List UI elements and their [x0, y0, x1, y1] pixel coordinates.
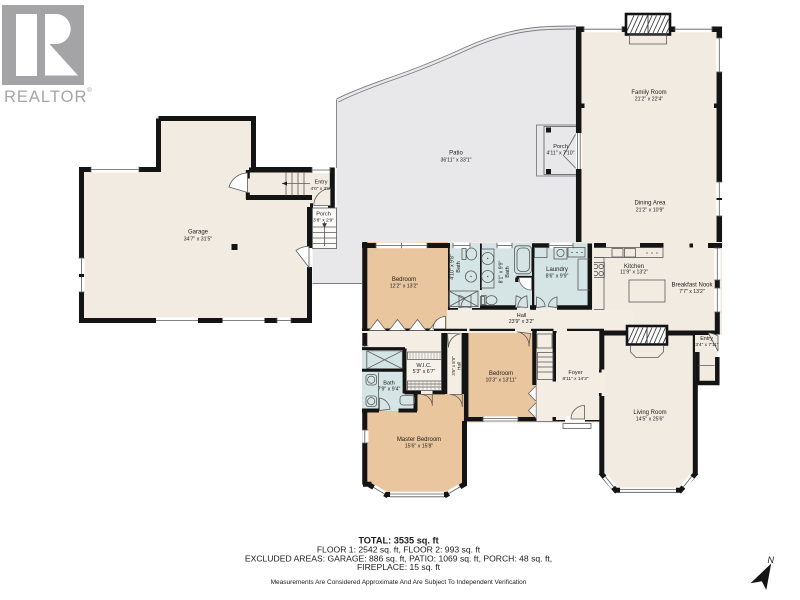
- svg-text:21'2" x 22'4": 21'2" x 22'4": [635, 97, 664, 103]
- svg-text:Bedroom: Bedroom: [489, 371, 513, 377]
- svg-text:8'6" x 9'9": 8'6" x 9'9": [546, 274, 569, 280]
- svg-text:Garage: Garage: [188, 230, 209, 236]
- svg-text:10'3" x 13'11": 10'3" x 13'11": [486, 378, 517, 384]
- svg-text:N: N: [768, 555, 775, 565]
- svg-text:4'0" x 3'9": 4'0" x 3'9": [311, 186, 332, 192]
- svg-text:Patio: Patio: [449, 151, 463, 157]
- svg-text:Porch: Porch: [316, 212, 331, 218]
- svg-text:7'9" x 9'4": 7'9" x 9'4": [378, 387, 401, 393]
- svg-text:Bath: Bath: [505, 266, 511, 278]
- svg-text:Living Room: Living Room: [633, 410, 666, 416]
- svg-text:Entry: Entry: [700, 336, 713, 342]
- svg-text:14'5" x 25'6": 14'5" x 25'6": [636, 417, 665, 423]
- svg-text:8'11" x 14'3": 8'11" x 14'3": [563, 376, 589, 382]
- svg-text:4'11" x 7'10": 4'11" x 7'10": [546, 151, 574, 157]
- svg-text:5'3" x 6'7": 5'3" x 6'7": [413, 369, 436, 375]
- svg-text:Entry: Entry: [314, 180, 327, 186]
- svg-text:Bath: Bath: [456, 261, 462, 273]
- svg-text:FIREPLACE: 15 sq. ft: FIREPLACE: 15 sq. ft: [357, 562, 441, 572]
- svg-text:Foyer: Foyer: [568, 370, 582, 376]
- svg-text:12'2" x 13'2": 12'2" x 13'2": [390, 284, 419, 290]
- svg-text:Porch: Porch: [553, 144, 568, 150]
- svg-text:Hall: Hall: [457, 362, 462, 370]
- svg-text:7'7" x 13'2": 7'7" x 13'2": [679, 289, 705, 295]
- svg-text:8'1" x 9'9": 8'1" x 9'9": [499, 261, 505, 284]
- svg-text:®: ®: [87, 86, 92, 94]
- svg-text:3'4" x 7'11": 3'4" x 7'11": [695, 342, 719, 348]
- svg-text:Master Bedroom: Master Bedroom: [397, 437, 441, 443]
- svg-text:REALTOR: REALTOR: [4, 88, 87, 106]
- svg-text:Laundry: Laundry: [546, 267, 568, 273]
- svg-text:3'5" x 8'9": 3'5" x 8'9": [451, 356, 456, 376]
- svg-text:Breakfast Nook: Breakfast Nook: [671, 283, 713, 289]
- svg-text:34'7" x 31'5": 34'7" x 31'5": [184, 237, 213, 243]
- svg-text:Family Room: Family Room: [631, 90, 666, 96]
- svg-text:36'11" x 33'1": 36'11" x 33'1": [441, 158, 472, 164]
- svg-text:21'2" x 10'9": 21'2" x 10'9": [636, 208, 665, 214]
- svg-text:23'9" x 3'2": 23'9" x 3'2": [509, 319, 535, 325]
- svg-text:Bedroom: Bedroom: [392, 277, 416, 283]
- svg-text:Dining Area: Dining Area: [634, 201, 666, 207]
- svg-text:Measurements Are Considered Ap: Measurements Are Considered Approximate …: [271, 579, 527, 586]
- svg-text:3'8" x 2'9": 3'8" x 2'9": [313, 218, 334, 224]
- svg-text:11'9" x 13'2": 11'9" x 13'2": [620, 270, 648, 276]
- svg-text:15'6" x 15'8": 15'6" x 15'8": [405, 444, 434, 450]
- svg-text:4'10" x 9'8": 4'10" x 9'8": [450, 254, 456, 280]
